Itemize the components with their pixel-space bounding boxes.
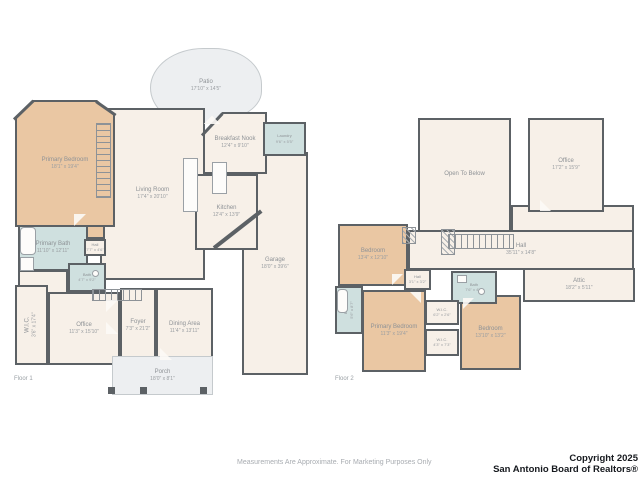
kitchen-island <box>212 162 227 194</box>
room-dims: 17'4" x 20'10" <box>137 195 167 201</box>
room-dims: 3'6" x 17'4" <box>33 313 39 338</box>
room-dims: 12'4" x 9'10" <box>221 144 248 150</box>
kitchen-counter <box>183 158 198 212</box>
room-dims: 7'7" x 4'6" <box>86 248 104 252</box>
room-dims: 9'6" x 5'5" <box>276 140 294 144</box>
room-dims: 18'0" x 8'1" <box>150 377 175 383</box>
room-office-f2: Office 17'2" x 15'9" <box>528 118 604 212</box>
floorplan-canvas: Patio 17'10" x 14'5" Garage 18'0" x 39'6… <box>0 0 640 480</box>
room-dims: 11'10" x 12'11" <box>37 249 69 255</box>
sink-icon <box>457 275 467 283</box>
room-primary-bedroom-f2: Primary Bedroom 11'3" x 19'4" <box>362 290 426 372</box>
room-dims: 13'10" x 13'2" <box>475 334 505 340</box>
floor1-tag: Floor 1 <box>14 376 33 382</box>
room-label: Office <box>558 158 574 165</box>
room-label: Primary Bath <box>36 241 71 248</box>
room-wic-b-f2: W.I.C. 4'3" x 7'3" <box>425 329 459 356</box>
room-porch: Porch 18'0" x 8'1" <box>112 356 213 395</box>
room-hall-small-f2: Hall 3'1" x 3'2" <box>404 269 431 290</box>
room-dims: 7'3" x 21'2" <box>126 327 151 333</box>
room-wic-a-f2: W.I.C. 6'2" x 2'6" <box>425 300 459 325</box>
room-label: Porch <box>155 369 171 376</box>
room-laundry: Laundry 9'6" x 5'5" <box>263 122 306 156</box>
room-dims: 5'6" x 8'7" <box>350 301 354 319</box>
room-dims: 17'10" x 14'5" <box>191 87 221 93</box>
room-dims: 4'7" x 9'2" <box>78 278 96 282</box>
room-label: Dining Area <box>169 321 200 328</box>
porch-pillar <box>200 387 207 394</box>
bathtub-icon <box>20 227 36 255</box>
room-dims: 3'1" x 3'2" <box>409 280 427 284</box>
porch-pillar <box>140 387 147 394</box>
stairs-f1-foyer <box>92 289 142 301</box>
room-label: Laundry <box>277 134 291 139</box>
room-label: Office <box>76 322 92 329</box>
room-attic: Attic 18'2" x 5'11" <box>523 268 635 302</box>
copyright-line2: San Antonio Board of Realtors® <box>493 465 638 476</box>
room-label: Bedroom <box>478 326 502 333</box>
disclaimer-text: Measurements Are Approximate. For Market… <box>237 459 432 466</box>
room-dims: 35'11" x 14'8" <box>506 251 536 257</box>
room-dims: 6'2" x 2'6" <box>433 313 451 317</box>
room-hall-f1: Hall 7'7" x 4'6" <box>84 239 106 256</box>
room-dims: 4'3" x 7'3" <box>433 343 451 347</box>
bathtub-icon <box>337 289 348 313</box>
room-dims: 18'0" x 39'6" <box>261 265 288 271</box>
room-dims: 11'3" x 15'10" <box>69 330 99 336</box>
stairs-f1 <box>96 123 111 198</box>
room-dims: 11'3" x 19'4" <box>380 332 407 338</box>
shower-icon <box>20 257 34 271</box>
room-bath-f1: Bath 4'7" x 9'2" <box>68 263 106 292</box>
room-label: Open To Below <box>444 171 485 178</box>
room-label: Living Room <box>136 187 169 194</box>
room-label: Breakfast Nook <box>214 136 255 143</box>
room-dims: 17'2" x 15'9" <box>552 166 579 172</box>
room-dims: 18'1" x 19'4" <box>51 165 78 171</box>
room-label: Primary Bedroom <box>371 324 418 331</box>
vertical-label: W.I.C. 3'6" x 17'4" <box>25 313 38 338</box>
room-label: Attic <box>573 278 585 285</box>
room-label: Bedroom <box>361 248 385 255</box>
toilet-icon <box>92 270 99 277</box>
stairs-f2 <box>448 234 514 249</box>
room-wic-f1: W.I.C. 3'6" x 17'4" <box>15 285 48 365</box>
room-open-to-below: Open To Below <box>418 118 511 232</box>
closet-f1 <box>86 225 105 239</box>
room-dims: 11'4" x 13'11" <box>170 329 199 335</box>
room-label: Hall <box>516 243 526 250</box>
copyright-text: Copyright 2025 San Antonio Board of Real… <box>493 454 638 475</box>
copyright-line1: Copyright 2025 <box>493 454 638 465</box>
room-bedroom2-f2: Bedroom 13'10" x 13'2" <box>460 295 521 370</box>
floor2-tag: Floor 2 <box>335 376 354 382</box>
toilet-icon <box>478 288 485 295</box>
room-dims: 13'4" x 12'10" <box>358 256 388 262</box>
room-label: Garage <box>265 257 285 264</box>
room-label: Foyer <box>130 319 145 326</box>
room-label: Patio <box>199 79 213 86</box>
room-label: Primary Bedroom <box>42 157 89 164</box>
room-dims: 12'4" x 13'9" <box>213 213 240 219</box>
room-dims: 18'2" x 5'11" <box>565 286 592 292</box>
porch-pillar <box>108 387 115 394</box>
closet-hatch <box>402 227 416 244</box>
room-label: Kitchen <box>216 205 236 212</box>
